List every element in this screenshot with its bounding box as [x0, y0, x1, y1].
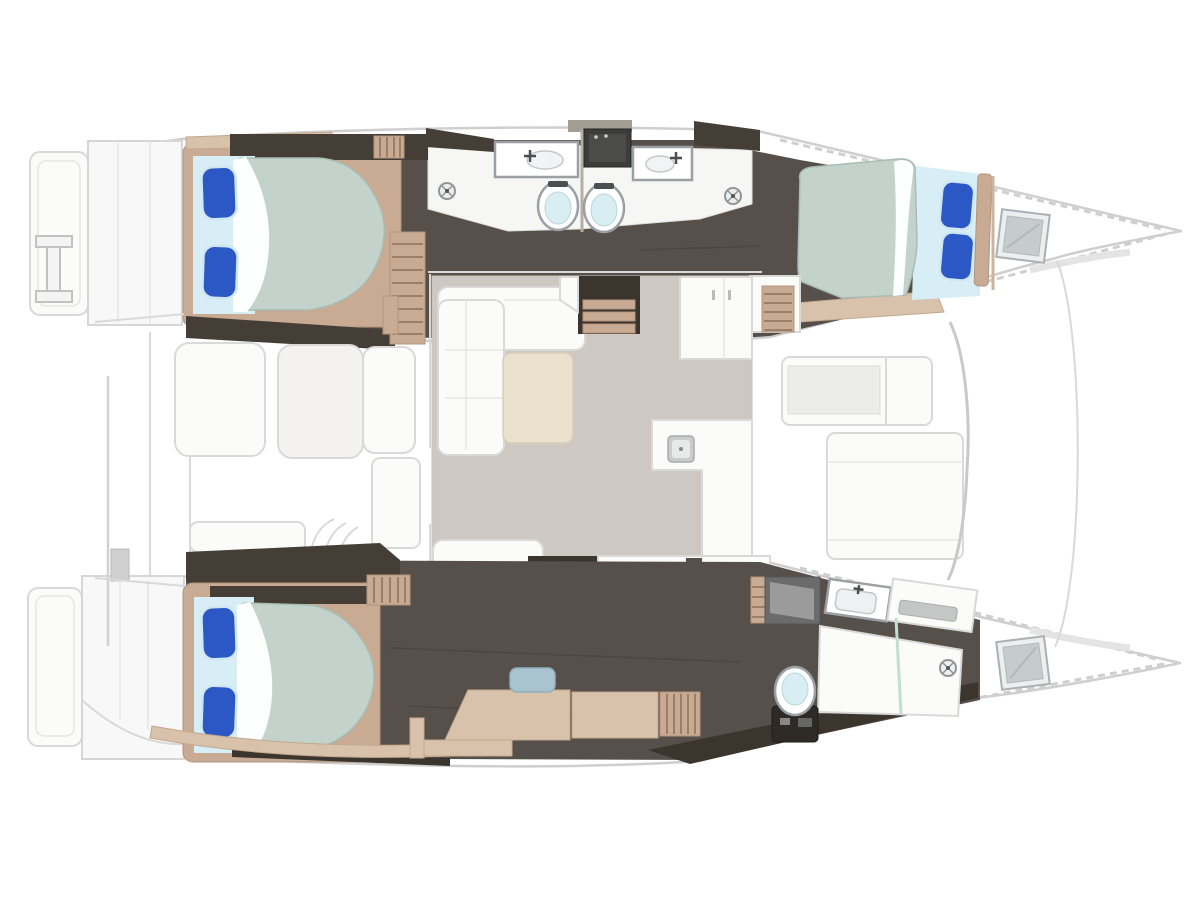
- catamaran-floor-plan: [0, 0, 1200, 900]
- locker-small: [383, 296, 398, 334]
- forepeak-hatch-icon: [996, 209, 1049, 262]
- floor-plan-svg: [0, 0, 1200, 900]
- cockpit-seat: [278, 345, 363, 458]
- pillow: [201, 166, 237, 219]
- desk-extension: [572, 692, 658, 738]
- hatch-block-inner: [589, 134, 626, 162]
- coffee-table: [503, 353, 573, 443]
- vanity-sink: [825, 579, 891, 621]
- galley-sink: [668, 436, 694, 462]
- cockpit-seat: [175, 343, 265, 456]
- vanity-sink-forward: [633, 147, 692, 180]
- pillow: [939, 232, 975, 282]
- coachroof-deck: [782, 322, 968, 580]
- shower-drain-forward: [725, 188, 741, 204]
- toilet-aft: [538, 181, 578, 230]
- pillow: [201, 685, 237, 738]
- pillow: [201, 606, 237, 659]
- forepeak-hatch-icon: [996, 636, 1049, 689]
- vanity-sink-aft: [495, 142, 578, 177]
- step-shelf: [410, 718, 424, 758]
- davit-block: [111, 549, 129, 581]
- owner-hull-interior: [150, 543, 980, 766]
- hatch-knob: [604, 134, 608, 138]
- pillow: [939, 181, 975, 231]
- toilet: [772, 667, 818, 742]
- toilet-forward: [584, 183, 624, 232]
- port-forward-cabin: [798, 159, 993, 300]
- shower-drain: [940, 660, 956, 676]
- hatch-knob: [594, 135, 598, 139]
- transom-step: [88, 141, 182, 325]
- cockpit-seat: [363, 347, 415, 453]
- step-shelf: [424, 740, 512, 756]
- foredeck-edge: [1055, 261, 1078, 647]
- transom-port: [30, 141, 182, 325]
- deck-panel-recess: [788, 366, 880, 414]
- companionway-steps-forward: [762, 286, 794, 332]
- galley-tall-cabinet: [680, 277, 752, 359]
- pillow: [202, 245, 238, 298]
- cockpit-side-panel: [372, 458, 420, 548]
- shower-drain-aft: [439, 183, 455, 199]
- stool: [510, 668, 555, 692]
